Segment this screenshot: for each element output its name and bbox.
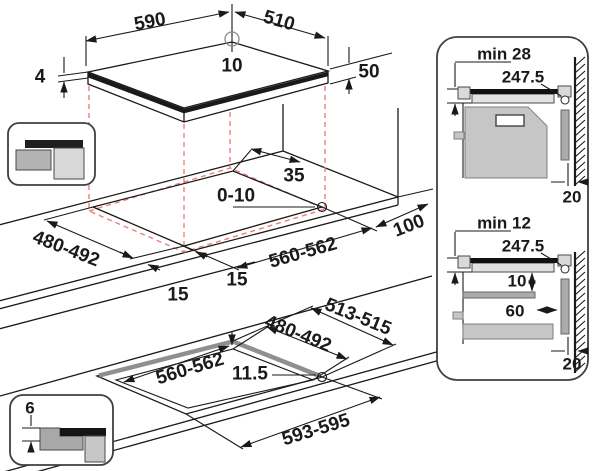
hob-glass-bar bbox=[60, 428, 106, 436]
dim-glass-thickness: 4 bbox=[35, 67, 46, 88]
rear-spacer bbox=[561, 110, 569, 160]
support-block bbox=[85, 436, 105, 462]
side-tab bbox=[453, 312, 463, 319]
dim-wall-gap: 20 bbox=[563, 188, 582, 207]
dim-front-clearance-left: 15 bbox=[167, 285, 189, 306]
dim-outer-width: 593-595 bbox=[280, 410, 353, 451]
dim-shelf-clearance: 60 bbox=[506, 302, 525, 321]
dim-cutout-width: 560-562 bbox=[267, 233, 340, 272]
dim-wall-gap: 20 bbox=[563, 355, 582, 374]
fixing-clamp-left bbox=[458, 87, 470, 99]
dim-ledge-width: 11.5 bbox=[232, 364, 268, 385]
hob-bar bbox=[25, 140, 83, 148]
extension-line bbox=[398, 189, 433, 197]
hob-glass-bar bbox=[463, 258, 562, 263]
dim-cutout-depth: 480-492 bbox=[30, 227, 103, 272]
rear-spacer bbox=[561, 279, 569, 334]
dim-inner-width: 560-562 bbox=[154, 349, 227, 389]
shelf-bar bbox=[463, 292, 535, 298]
dim-body-height: 50 bbox=[358, 62, 379, 83]
dim-inner-depth: 480-492 bbox=[262, 311, 335, 357]
clearance-sections-panel: min 28 247.5 20 min 12 bbox=[437, 37, 588, 380]
hob-glass-bar bbox=[463, 89, 562, 94]
oven-vent bbox=[496, 115, 524, 126]
dim-duct: 247.5 bbox=[502, 237, 545, 256]
hob-body bbox=[88, 71, 328, 122]
fixing-clamp-left bbox=[458, 256, 470, 268]
section-title: min 28 bbox=[477, 45, 531, 64]
side-tab bbox=[454, 132, 464, 139]
dim-rear-clearance: 35 bbox=[283, 166, 305, 187]
dim-hob-width: 590 bbox=[132, 9, 167, 36]
section-title: min 12 bbox=[477, 214, 531, 233]
extension-line bbox=[58, 72, 88, 82]
dim-side-clearance: 100 bbox=[390, 211, 427, 242]
installation-diagram: 0-10 35 480-492 15 15 560-562 100 590 bbox=[0, 0, 600, 471]
dim-recess-depth: 6 bbox=[25, 399, 34, 418]
dim-front-clearance-right: 15 bbox=[226, 270, 248, 291]
drawer-body bbox=[463, 324, 553, 339]
dim-hole-offset: 10 bbox=[221, 56, 242, 77]
worktop-slab bbox=[472, 94, 554, 103]
duct-mark bbox=[561, 265, 569, 273]
duct-mark bbox=[561, 96, 569, 104]
oven-block bbox=[16, 150, 51, 170]
dim-shelf-gap: 10 bbox=[508, 272, 527, 291]
cabinet-block bbox=[54, 148, 84, 179]
dim-duct: 247.5 bbox=[502, 68, 545, 87]
flush-profile-inset: 6 bbox=[10, 395, 113, 465]
diagram-canvas: 0-10 35 480-492 15 15 560-562 100 590 bbox=[0, 0, 600, 471]
dim-corner-radius: 0-10 bbox=[217, 186, 255, 207]
hob-over-oven-inset bbox=[8, 123, 95, 185]
dim-outer-depth: 513-515 bbox=[322, 294, 395, 340]
dim-hob-depth: 510 bbox=[261, 7, 297, 36]
